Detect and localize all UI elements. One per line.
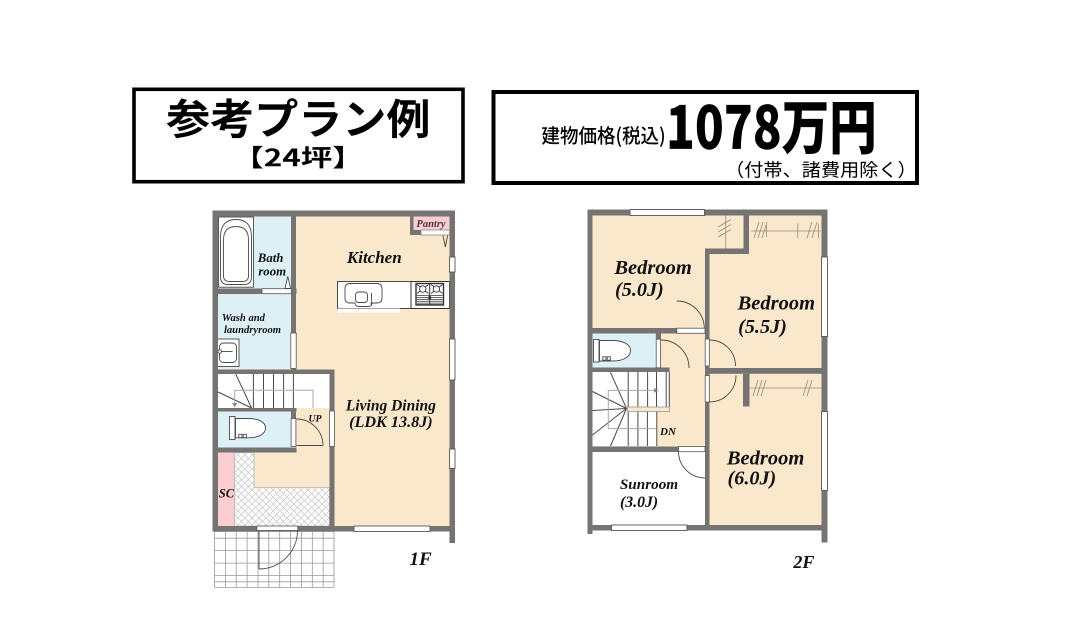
svg-text:UP: UP [308, 413, 322, 424]
svg-text:SC: SC [219, 487, 235, 501]
svg-text:Bedroom: Bedroom [613, 257, 691, 279]
svg-text:(3.0J): (3.0J) [620, 494, 658, 511]
svg-text:Pantry: Pantry [416, 219, 446, 230]
svg-text:Wash and: Wash and [222, 313, 266, 324]
svg-text:DN: DN [659, 426, 677, 438]
svg-text:Bedroom: Bedroom [726, 448, 804, 470]
svg-text:Kitchen: Kitchen [346, 248, 402, 267]
svg-text:room: room [258, 265, 286, 279]
svg-text:Sunroom: Sunroom [620, 476, 678, 493]
svg-text:Bath: Bath [257, 251, 284, 265]
svg-text:laundryroom: laundryroom [224, 325, 281, 336]
svg-text:2F: 2F [792, 552, 814, 572]
svg-text:(5.5J): (5.5J) [738, 316, 787, 338]
svg-text:Bedroom: Bedroom [737, 293, 815, 315]
svg-text:(5.0J): (5.0J) [615, 279, 664, 301]
svg-text:(6.0J): (6.0J) [728, 468, 777, 490]
svg-text:1F: 1F [410, 549, 433, 570]
svg-text:(LDK 13.8J): (LDK 13.8J) [349, 413, 433, 431]
